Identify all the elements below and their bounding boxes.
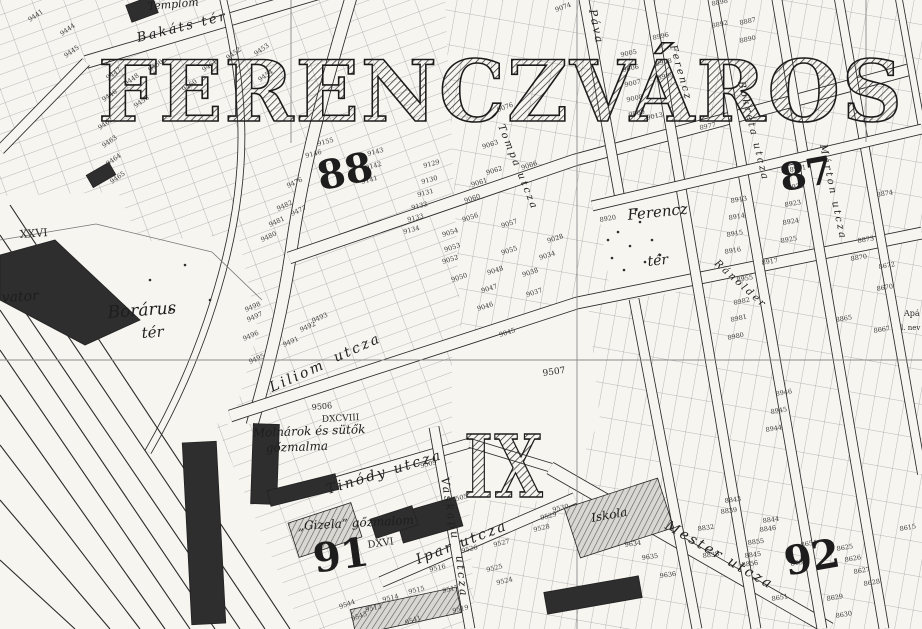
sheet-number-91: 91 xyxy=(310,528,372,582)
sheet-number-87: 87 xyxy=(776,147,836,201)
tree-dot xyxy=(607,239,610,242)
small-label: XXVI xyxy=(19,226,48,241)
place-label: vator xyxy=(1,288,40,306)
small-label: DXCVIII xyxy=(322,413,360,425)
small-label: Apá xyxy=(903,309,920,318)
tree-dot xyxy=(644,261,647,264)
tree-dot xyxy=(617,231,620,234)
sheet-number-92: 92 xyxy=(780,530,843,586)
historic-map-canvas: 9441944494459447944694489450945294539454… xyxy=(0,0,922,629)
small-label: l. nev xyxy=(901,324,920,332)
tree-dot xyxy=(149,279,152,282)
tree-dot xyxy=(623,269,626,272)
place-label: tér xyxy=(141,322,165,342)
tree-dot xyxy=(651,239,654,242)
tree-dot xyxy=(629,245,632,248)
district-title: FERENCZVÁROS xyxy=(98,42,904,141)
historic-map-viewer: 9441944494459447944694489450945294539454… xyxy=(0,0,922,629)
place-label: tér xyxy=(647,252,670,270)
place-label: gőzmalma xyxy=(266,439,329,455)
tree-dot xyxy=(209,299,212,302)
small-label: 9506 xyxy=(311,401,332,412)
district-numeral: IX xyxy=(464,417,544,518)
tree-dot xyxy=(184,264,187,267)
tree-dot xyxy=(611,257,614,260)
